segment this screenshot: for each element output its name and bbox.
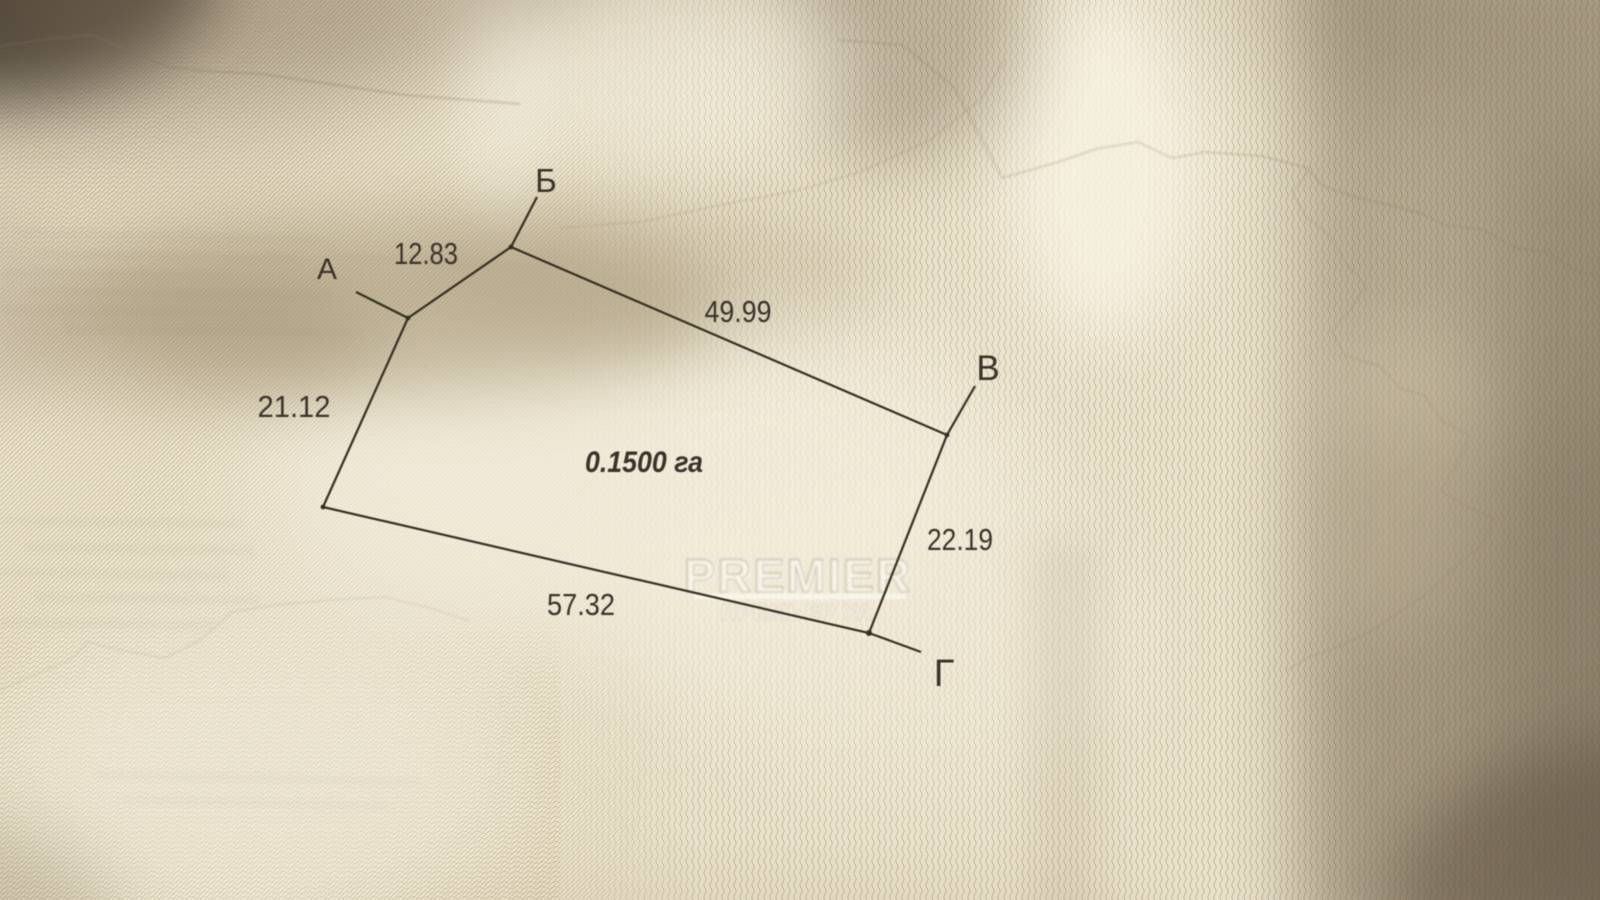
svg-text:21.12: 21.12 (258, 389, 331, 424)
svg-text:22.19: 22.19 (927, 522, 993, 557)
svg-text:Г: Г (934, 653, 955, 695)
svg-text:В: В (976, 349, 999, 388)
svg-text:12.83: 12.83 (394, 236, 458, 271)
svg-text:57.32: 57.32 (547, 587, 615, 622)
svg-text:А: А (317, 253, 337, 286)
svg-text:49.99: 49.99 (705, 294, 772, 329)
svg-text:Б: Б (535, 162, 557, 199)
svg-text:0.1500 га: 0.1500 га (585, 446, 703, 479)
